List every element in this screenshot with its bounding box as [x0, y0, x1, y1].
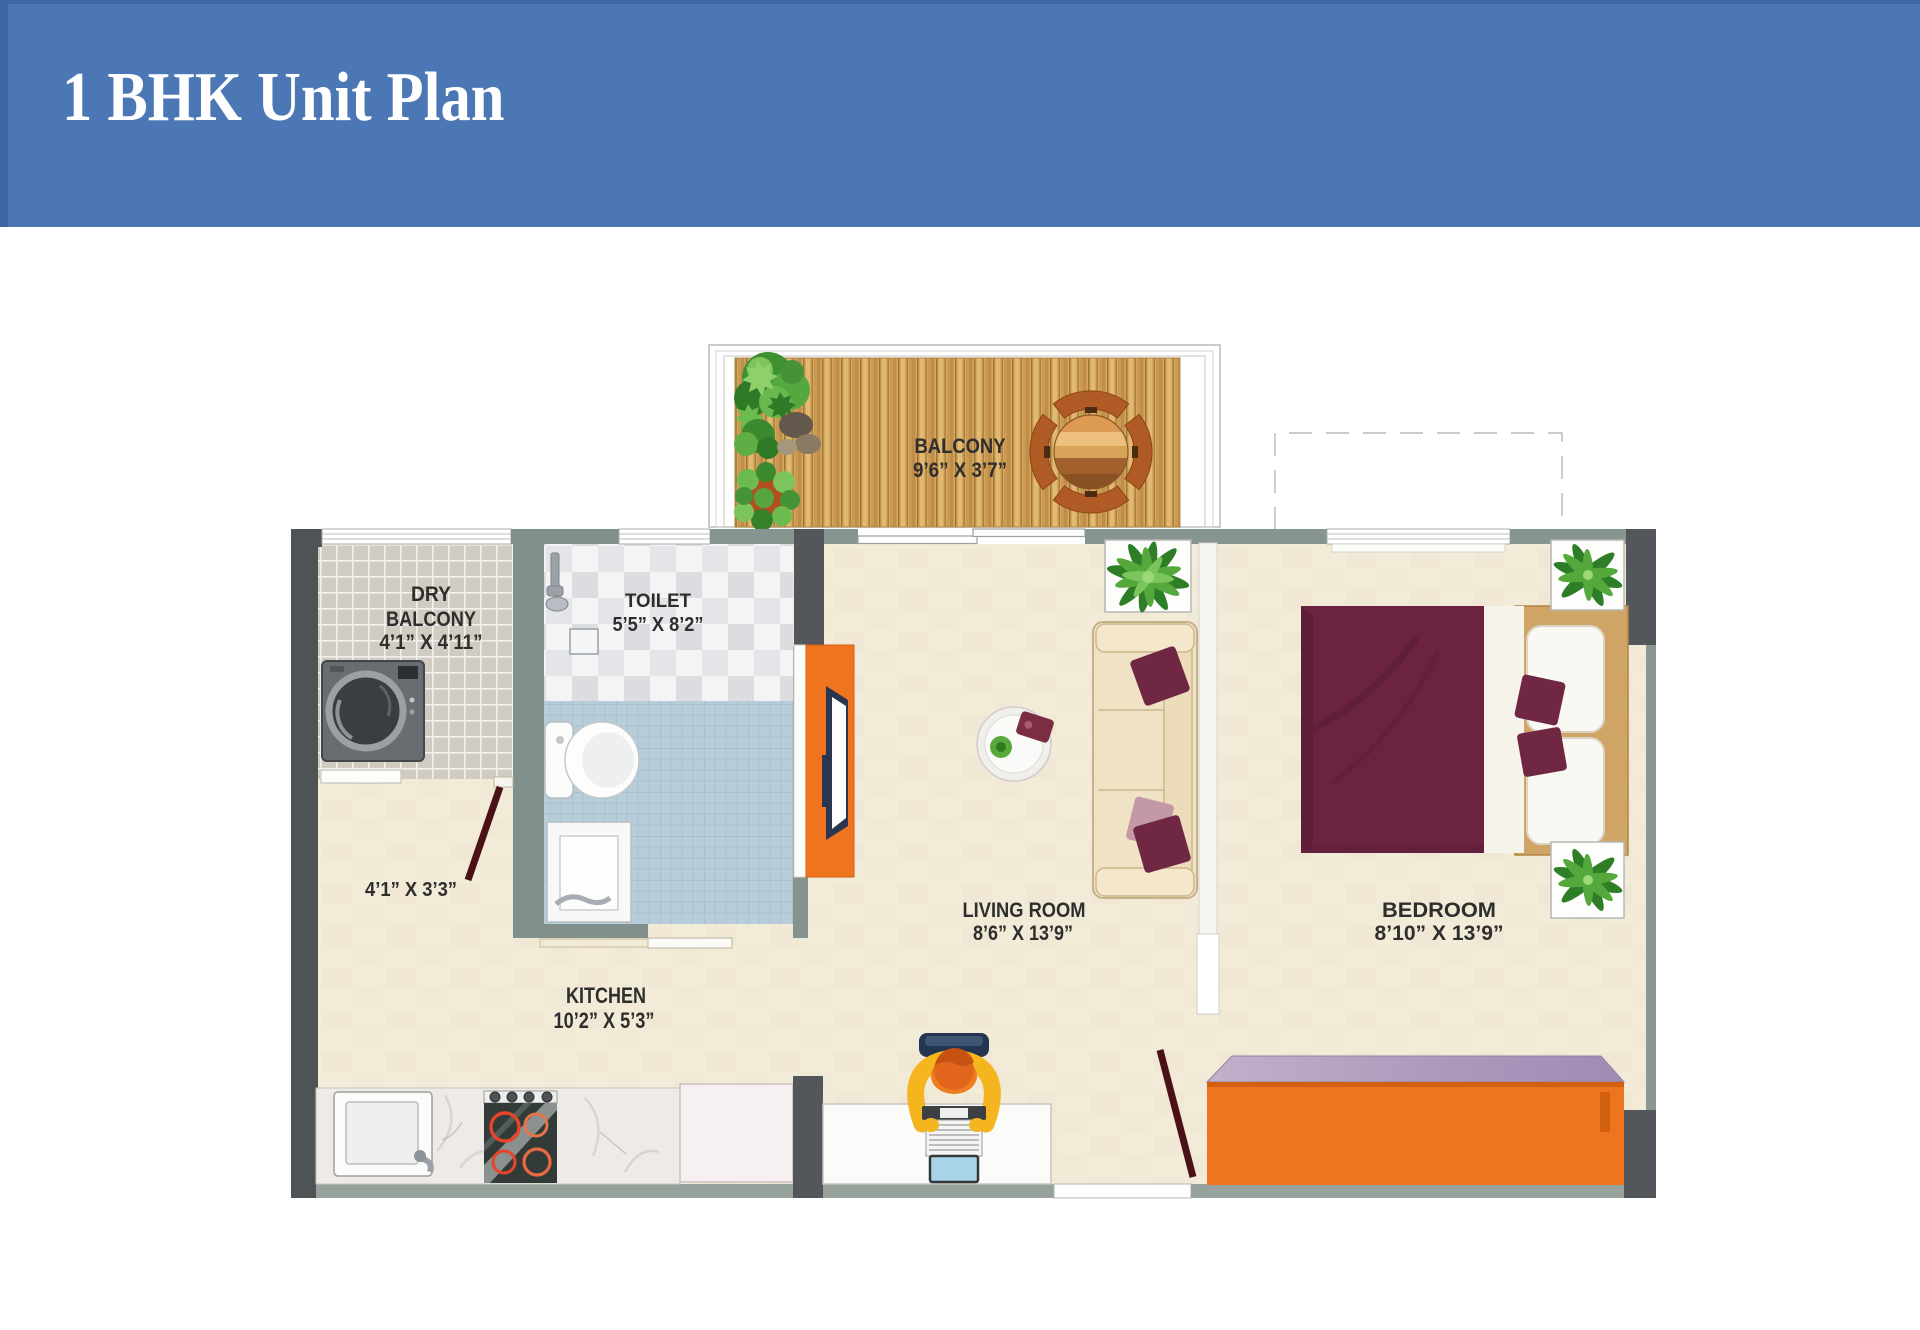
- svg-text:DRY: DRY: [411, 583, 451, 606]
- svg-text:LIVING ROOM: LIVING ROOM: [963, 899, 1086, 922]
- svg-text:8’10” X 13’9”: 8’10” X 13’9”: [1375, 922, 1504, 945]
- svg-text:4’1” X 4’11”: 4’1” X 4’11”: [380, 631, 483, 654]
- svg-text:KITCHEN: KITCHEN: [566, 983, 646, 1008]
- svg-text:BALCONY: BALCONY: [386, 608, 476, 631]
- svg-text:10’2” X 5’3”: 10’2” X 5’3”: [554, 1008, 655, 1033]
- svg-text:BEDROOM: BEDROOM: [1382, 899, 1496, 922]
- svg-text:BALCONY: BALCONY: [915, 435, 1006, 458]
- svg-text:TOILET: TOILET: [625, 590, 691, 612]
- svg-text:5’5” X 8’2”: 5’5” X 8’2”: [613, 614, 704, 636]
- svg-text:9’6” X 3’7”: 9’6” X 3’7”: [913, 459, 1007, 482]
- svg-text:4’1” X 3’3”: 4’1” X 3’3”: [365, 879, 457, 901]
- svg-text:8’6” X 13’9”: 8’6” X 13’9”: [973, 922, 1073, 945]
